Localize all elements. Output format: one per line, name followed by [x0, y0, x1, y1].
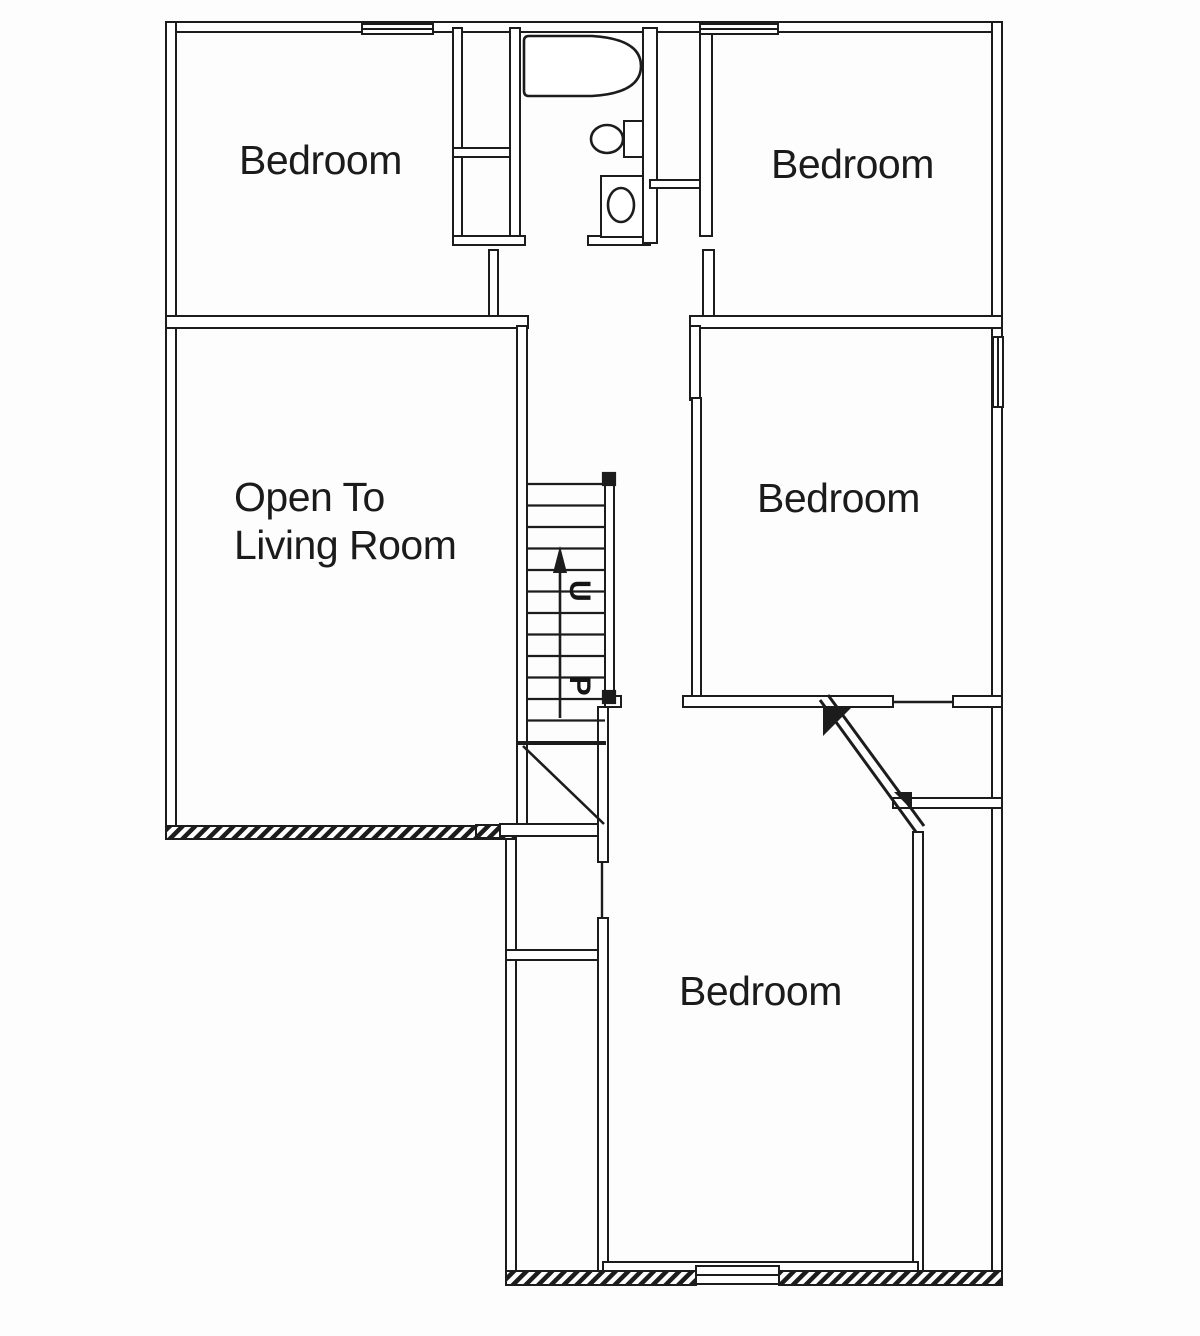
wall	[913, 832, 923, 1271]
hatched-exterior-wall	[779, 1271, 1002, 1285]
wall-left-lower	[506, 838, 516, 1285]
wall-cap	[603, 473, 615, 485]
stairs-up-label: UP	[563, 580, 596, 770]
wall	[598, 918, 608, 1271]
toilet	[608, 188, 634, 222]
wall	[166, 316, 528, 328]
wall-closet-divider	[650, 180, 707, 188]
sink	[591, 125, 623, 153]
hatched-exterior-wall	[476, 825, 503, 838]
room-label-bedroom-top-right: Bedroom	[771, 141, 934, 189]
hatched-exterior-wall	[506, 1271, 696, 1285]
wall-top	[166, 22, 1002, 32]
bathtub	[524, 36, 641, 96]
wall	[643, 28, 657, 243]
bathroom-fixtures	[524, 36, 643, 237]
wall-right	[992, 22, 1002, 1285]
open-living-line1: Open To	[234, 474, 385, 520]
window-symbol	[993, 337, 1003, 407]
floor-plan: Bedroom Bedroom Bedroom Bedroom Open ToL…	[0, 0, 1200, 1336]
open-living-line2: Living Room	[234, 522, 456, 568]
wall-hall-stub-right	[703, 250, 714, 316]
wall	[692, 398, 701, 700]
wall	[453, 236, 525, 245]
wall	[953, 696, 1002, 707]
wall-left-upper	[166, 22, 176, 838]
wall	[453, 28, 462, 238]
wall-closet-divider	[453, 148, 517, 157]
wall	[500, 824, 608, 836]
room-label-open-to-living-room: Open ToLiving Room	[234, 474, 456, 570]
wall	[506, 950, 608, 960]
wall-stair-left	[517, 326, 527, 826]
window-symbol	[696, 1266, 779, 1284]
wall	[683, 696, 893, 707]
wall	[510, 28, 520, 243]
wall	[690, 326, 700, 400]
wall-stair-right	[605, 475, 614, 703]
room-label-bedroom-bottom: Bedroom	[679, 968, 842, 1016]
room-label-bedroom-middle-right: Bedroom	[757, 475, 920, 523]
wall	[598, 707, 608, 862]
hatched-walls	[166, 825, 1002, 1285]
wall	[700, 28, 712, 236]
floor-plan-drawing	[0, 0, 1200, 1336]
chamfered-corner-door	[820, 695, 924, 832]
window-symbol	[362, 24, 433, 34]
window-symbol	[700, 24, 778, 34]
sink-counter	[624, 121, 643, 157]
wall-hall-stub-left	[489, 250, 498, 316]
wall-cap	[603, 691, 615, 703]
hatched-exterior-wall	[166, 826, 514, 839]
wall	[690, 316, 1002, 328]
room-label-bedroom-top-left: Bedroom	[239, 137, 402, 185]
